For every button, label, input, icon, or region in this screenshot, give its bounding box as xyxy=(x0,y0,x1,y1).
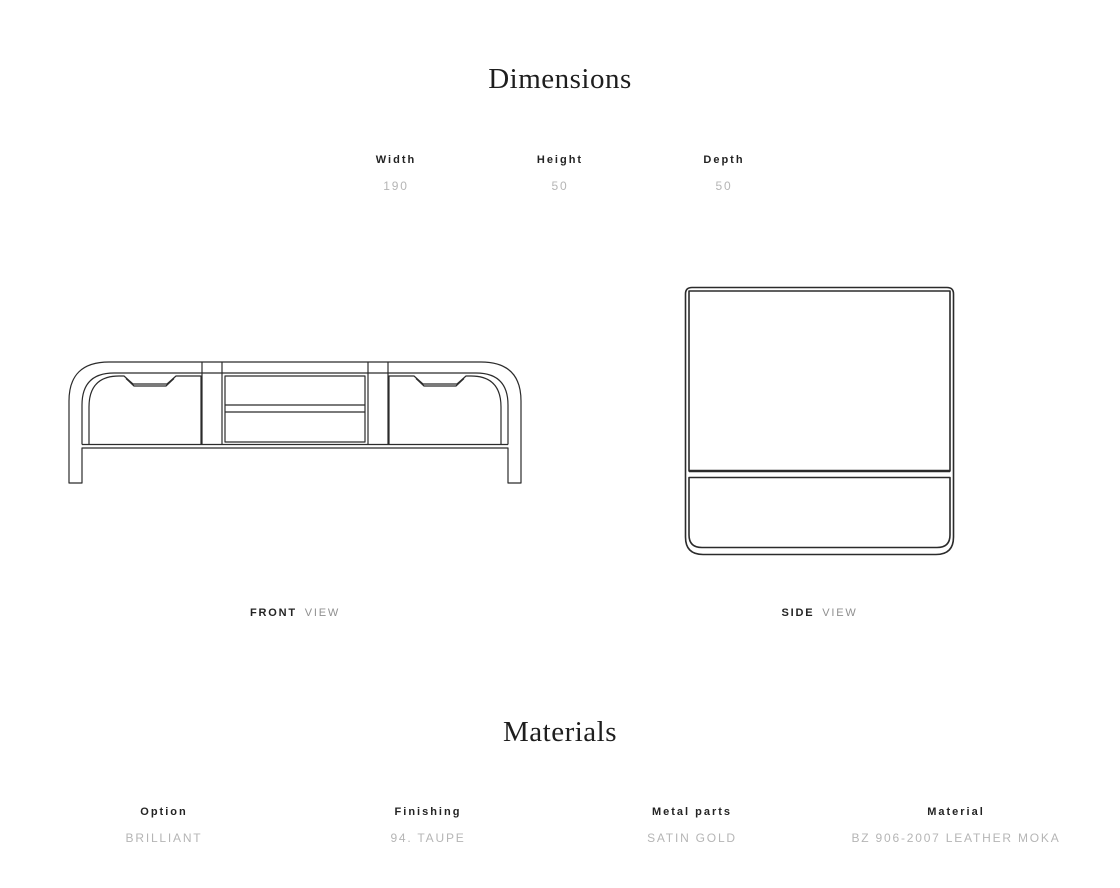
side-view-drawing xyxy=(684,286,955,556)
material-label: Metal parts xyxy=(560,805,824,820)
dimensions-row: Width 190 Height 50 Depth 50 xyxy=(0,153,1120,194)
materials-section-title: Materials xyxy=(0,716,1120,749)
material-label: Option xyxy=(32,805,296,820)
dimension-height: Height 50 xyxy=(478,153,642,194)
material-option: Option BRILLIANT xyxy=(32,805,296,846)
front-view-caption-muted: VIEW xyxy=(305,607,340,619)
material-value: SATIN GOLD xyxy=(560,831,824,846)
dimension-value: 50 xyxy=(642,179,806,194)
dimension-label: Height xyxy=(478,153,642,168)
dimensions-section-title: Dimensions xyxy=(0,63,1120,96)
front-view-drawing xyxy=(67,359,523,485)
side-view-caption-strong: SIDE xyxy=(781,607,814,619)
dimension-label: Depth xyxy=(642,153,806,168)
dimension-width: Width 190 xyxy=(314,153,478,194)
material-metal-parts: Metal parts SATIN GOLD xyxy=(560,805,824,846)
materials-row: Option BRILLIANT Finishing 94. TAUPE Met… xyxy=(32,805,1088,846)
material-value: BZ 906-2007 LEATHER MOKA xyxy=(824,831,1088,846)
side-view-caption-muted: VIEW xyxy=(822,607,857,619)
material-value: BRILLIANT xyxy=(32,831,296,846)
material-material: Material BZ 906-2007 LEATHER MOKA xyxy=(824,805,1088,846)
side-view-caption: SIDE VIEW xyxy=(684,606,955,621)
material-label: Finishing xyxy=(296,805,560,820)
material-finishing: Finishing 94. TAUPE xyxy=(296,805,560,846)
front-view-caption: FRONT VIEW xyxy=(67,606,523,621)
dimension-value: 50 xyxy=(478,179,642,194)
material-label: Material xyxy=(824,805,1088,820)
dimension-value: 190 xyxy=(314,179,478,194)
product-spec-page: Dimensions Width 190 Height 50 Depth 50 xyxy=(0,0,1120,888)
dimension-label: Width xyxy=(314,153,478,168)
material-value: 94. TAUPE xyxy=(296,831,560,846)
dimension-depth: Depth 50 xyxy=(642,153,806,194)
front-view-caption-strong: FRONT xyxy=(250,607,297,619)
